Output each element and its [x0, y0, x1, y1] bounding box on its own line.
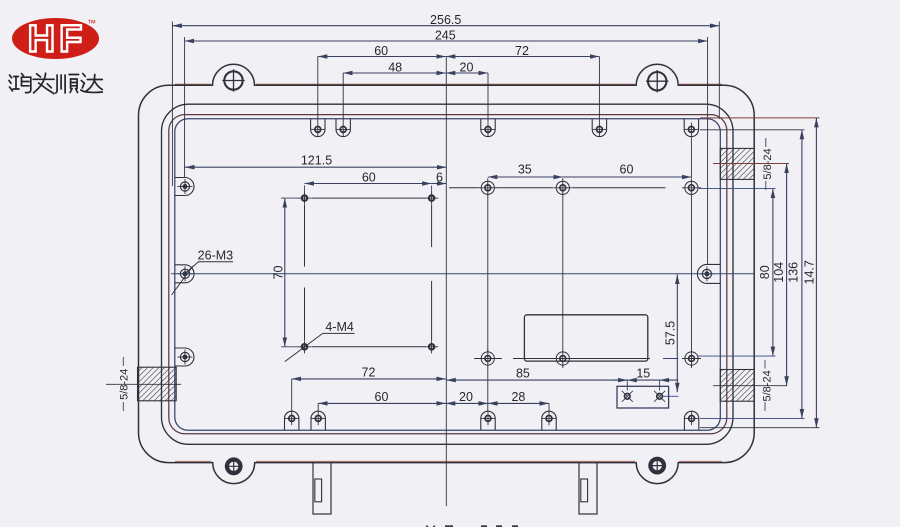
svg-text:60: 60 — [374, 44, 388, 58]
svg-text:15: 15 — [636, 367, 650, 381]
svg-text:256.5: 256.5 — [430, 13, 461, 27]
svg-text:72: 72 — [515, 44, 529, 58]
svg-text:245: 245 — [435, 29, 456, 43]
svg-text:70: 70 — [272, 266, 286, 280]
svg-text:6: 6 — [436, 171, 443, 185]
svg-text:20: 20 — [460, 61, 474, 75]
svg-text:14.7: 14.7 — [803, 260, 817, 284]
svg-text:85: 85 — [516, 367, 530, 381]
svg-text:104: 104 — [772, 262, 786, 283]
svg-text:60: 60 — [362, 171, 376, 185]
svg-text:26-M3: 26-M3 — [198, 249, 233, 263]
svg-text:4-M4: 4-M4 — [325, 320, 354, 334]
svg-text:™: ™ — [87, 18, 96, 28]
svg-text:121.5: 121.5 — [301, 154, 332, 168]
svg-text:72: 72 — [362, 365, 376, 379]
svg-text:5/8-24: 5/8-24 — [762, 370, 774, 401]
svg-text:5/8-24: 5/8-24 — [762, 148, 774, 179]
svg-text:136: 136 — [787, 262, 801, 283]
svg-text:57.5: 57.5 — [664, 321, 678, 345]
svg-text:35: 35 — [518, 163, 532, 177]
svg-text:48: 48 — [388, 61, 402, 75]
svg-text:80: 80 — [758, 265, 772, 279]
svg-text:20: 20 — [459, 390, 473, 404]
svg-text:5/8-24: 5/8-24 — [119, 369, 131, 400]
svg-text:HF: HF — [28, 19, 87, 61]
svg-text:60: 60 — [375, 390, 389, 404]
svg-text:28: 28 — [511, 390, 525, 404]
svg-text:60: 60 — [620, 163, 634, 177]
svg-text:X: X — [425, 522, 436, 527]
